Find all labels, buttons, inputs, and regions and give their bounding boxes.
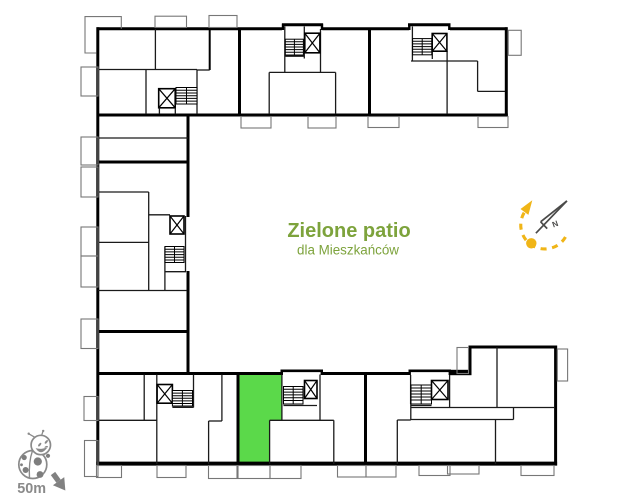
svg-text:dla Mieszkańców: dla Mieszkańców: [297, 243, 399, 258]
svg-text:50m: 50m: [17, 481, 46, 497]
svg-text:Zielone patio: Zielone patio: [287, 220, 410, 242]
